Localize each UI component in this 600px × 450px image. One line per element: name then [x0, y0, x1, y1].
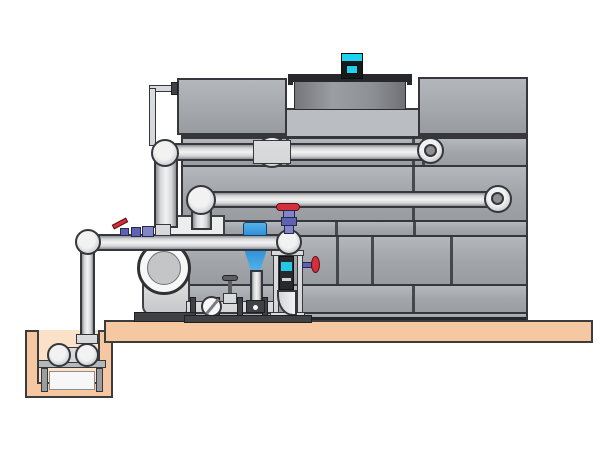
solenoid-valve — [142, 226, 154, 237]
concrete-slab — [104, 320, 593, 343]
return-pipe-elbow-left — [151, 139, 179, 167]
sump-pump-motor-end — [47, 343, 71, 367]
stand-post — [297, 250, 303, 316]
butterfly-valve-disc — [205, 298, 220, 314]
stand-drain-handwheel — [311, 256, 320, 273]
drop-pipe-fitting — [246, 300, 265, 313]
panel-joint — [450, 237, 453, 286]
fan-motor-cap — [342, 54, 362, 61]
globe-valve-body — [223, 293, 237, 304]
pipe-flange — [237, 297, 243, 317]
stand-control-box — [279, 256, 294, 290]
sump-riser-pipe — [80, 252, 95, 342]
tower-upper-inlet-opening — [424, 144, 437, 157]
panel-joint — [336, 237, 339, 286]
fan-deck-recess — [287, 108, 418, 136]
fan-motor — [341, 53, 363, 79]
control-box-display — [281, 262, 292, 271]
solenoid-valve — [131, 227, 141, 237]
fan-motor-window — [346, 65, 358, 74]
panel-joint — [412, 286, 415, 314]
actuated-valve-cap — [243, 222, 267, 236]
fan-shroud-drum — [294, 80, 406, 110]
ball-valve-body — [120, 228, 129, 236]
skid-base-rail — [184, 315, 312, 323]
equalizer-elbow-left — [186, 185, 216, 215]
tower-top-left-box — [177, 78, 287, 135]
header-elbow-left — [75, 229, 101, 255]
sump-pump-stand-leg — [41, 368, 48, 392]
panel-joint — [371, 237, 374, 286]
gate-valve-neck — [284, 225, 294, 234]
butterfly-valve — [201, 296, 222, 317]
tower-top-right-box — [418, 77, 528, 135]
sump-pump-stand-shelf — [49, 371, 95, 390]
equalizer-pipe — [200, 191, 497, 208]
makeup-standpipe-vertical — [149, 88, 156, 146]
sump-pump-casing-end — [75, 343, 99, 367]
return-pipe-coupling — [253, 140, 291, 164]
sump-pump-stand-leg — [96, 368, 103, 392]
tower-mid-inlet-opening — [491, 192, 504, 205]
fan-shroud-rim-lip — [407, 74, 412, 85]
header-fitting — [155, 224, 171, 236]
suction-header-pipe — [85, 234, 290, 251]
control-box-label — [282, 278, 291, 281]
diagram-canvas — [0, 0, 600, 450]
fan-shroud-rim-lip — [288, 74, 293, 85]
standpipe-flange — [171, 82, 178, 95]
pump-suction-inner — [147, 251, 181, 285]
fitting-bolt — [253, 305, 258, 310]
hot-water-return-pipe — [165, 143, 425, 161]
